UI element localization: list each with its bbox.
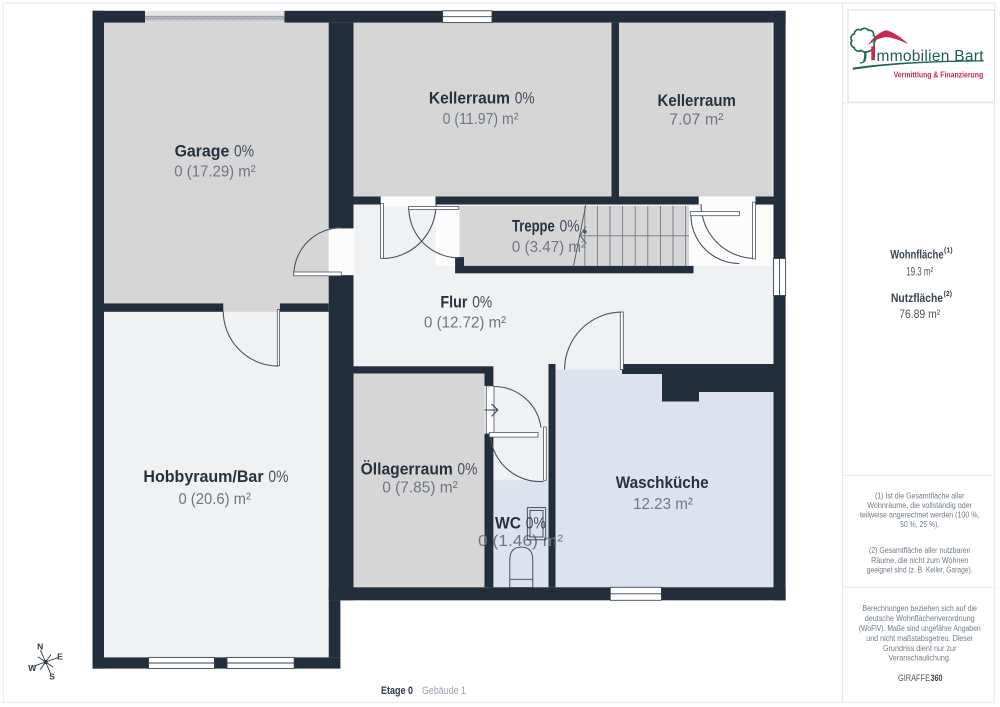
svg-text:(1) Ist die Gesamtfläche aller: (1) Ist die Gesamtfläche aller: [875, 491, 965, 500]
svg-text:Hobbyraum/Bar: Hobbyraum/Bar: [143, 468, 264, 486]
svg-text:(1): (1): [944, 247, 953, 254]
svg-text:0 (20.6) m²: 0 (20.6) m²: [178, 491, 251, 508]
svg-text:teilweise angerechnet werden (: teilweise angerechnet werden (100 %,: [860, 511, 980, 520]
svg-text:Kellerraum: Kellerraum: [658, 92, 736, 110]
svg-text:0%: 0%: [457, 461, 477, 479]
svg-text:S: S: [49, 672, 55, 682]
svg-text:N: N: [37, 642, 43, 652]
svg-text:19.3 m²: 19.3 m²: [906, 264, 933, 278]
svg-text:0 (17.29) m²: 0 (17.29) m²: [174, 163, 255, 180]
svg-text:(WoFlV). Maße sind ungefähre A: (WoFlV). Maße sind ungefähre Angaben: [859, 624, 981, 633]
svg-text:Garage: Garage: [175, 142, 230, 160]
svg-text:12.23 m²: 12.23 m²: [633, 496, 693, 513]
svg-text:0 (3.47) m²: 0 (3.47) m²: [512, 239, 586, 256]
svg-text:Treppe: Treppe: [512, 218, 555, 236]
svg-text:geeignet sind (z. B. Keller, G: geeignet sind (z. B. Keller, Garage).: [867, 565, 973, 574]
svg-text:Räume, die nicht zum Wohnen: Räume, die nicht zum Wohnen: [871, 556, 968, 565]
svg-text:0%: 0%: [268, 468, 288, 486]
svg-text:Berechnungen beziehen sich auf: Berechnungen beziehen sich auf die: [862, 604, 977, 613]
svg-text:Wohnräume, die vollständig ode: Wohnräume, die vollständig oder: [867, 501, 972, 510]
svg-text:deutsche Wohnflächenverordnung: deutsche Wohnflächenverordnung: [865, 614, 975, 623]
svg-text:Wohnfläche: Wohnfläche: [890, 247, 944, 261]
svg-text:0%: 0%: [234, 142, 254, 160]
svg-text:Etage 0: Etage 0: [381, 685, 413, 697]
svg-text:0%: 0%: [472, 294, 492, 312]
svg-text:Flur: Flur: [440, 294, 468, 312]
svg-text:GIRAFFE: GIRAFFE: [898, 673, 930, 683]
svg-text:Waschküche: Waschküche: [616, 474, 709, 492]
svg-text:0%: 0%: [515, 90, 535, 108]
svg-text:(2) Gesamtfläche aller nutzbar: (2) Gesamtfläche aller nutzbaren: [869, 546, 971, 555]
svg-text:0 (7.85) m²: 0 (7.85) m²: [382, 480, 458, 497]
svg-text:0%: 0%: [560, 218, 580, 236]
svg-text:76.89 m²: 76.89 m²: [899, 307, 940, 321]
svg-text:7.07 m²: 7.07 m²: [669, 111, 723, 128]
svg-text:Nutzfläche: Nutzfläche: [891, 291, 943, 305]
svg-text:50 %, 25 %).: 50 %, 25 %).: [900, 520, 939, 529]
svg-text:Veranschaulichung.: Veranschaulichung.: [889, 654, 951, 663]
svg-text:WC: WC: [495, 515, 521, 533]
svg-text:Grundriss dient nur zur: Grundriss dient nur zur: [883, 644, 957, 653]
svg-text:Gebäude 1: Gebäude 1: [422, 685, 466, 697]
svg-text:Vermittlung & Finanzierung: Vermittlung & Finanzierung: [894, 71, 984, 80]
svg-text:Öllagerraum: Öllagerraum: [361, 460, 453, 479]
svg-text:360: 360: [931, 673, 943, 683]
svg-text:0 (11.97) m²: 0 (11.97) m²: [443, 111, 519, 128]
svg-text:und nicht maßstabsgetreu. Dies: und nicht maßstabsgetreu. Dieser: [866, 634, 973, 643]
svg-text:E: E: [57, 652, 63, 662]
svg-text:W: W: [28, 663, 37, 673]
svg-text:0 (12.72) m²: 0 (12.72) m²: [424, 315, 506, 332]
svg-text:Kellerraum: Kellerraum: [429, 90, 510, 108]
svg-text:(2): (2): [944, 291, 953, 298]
